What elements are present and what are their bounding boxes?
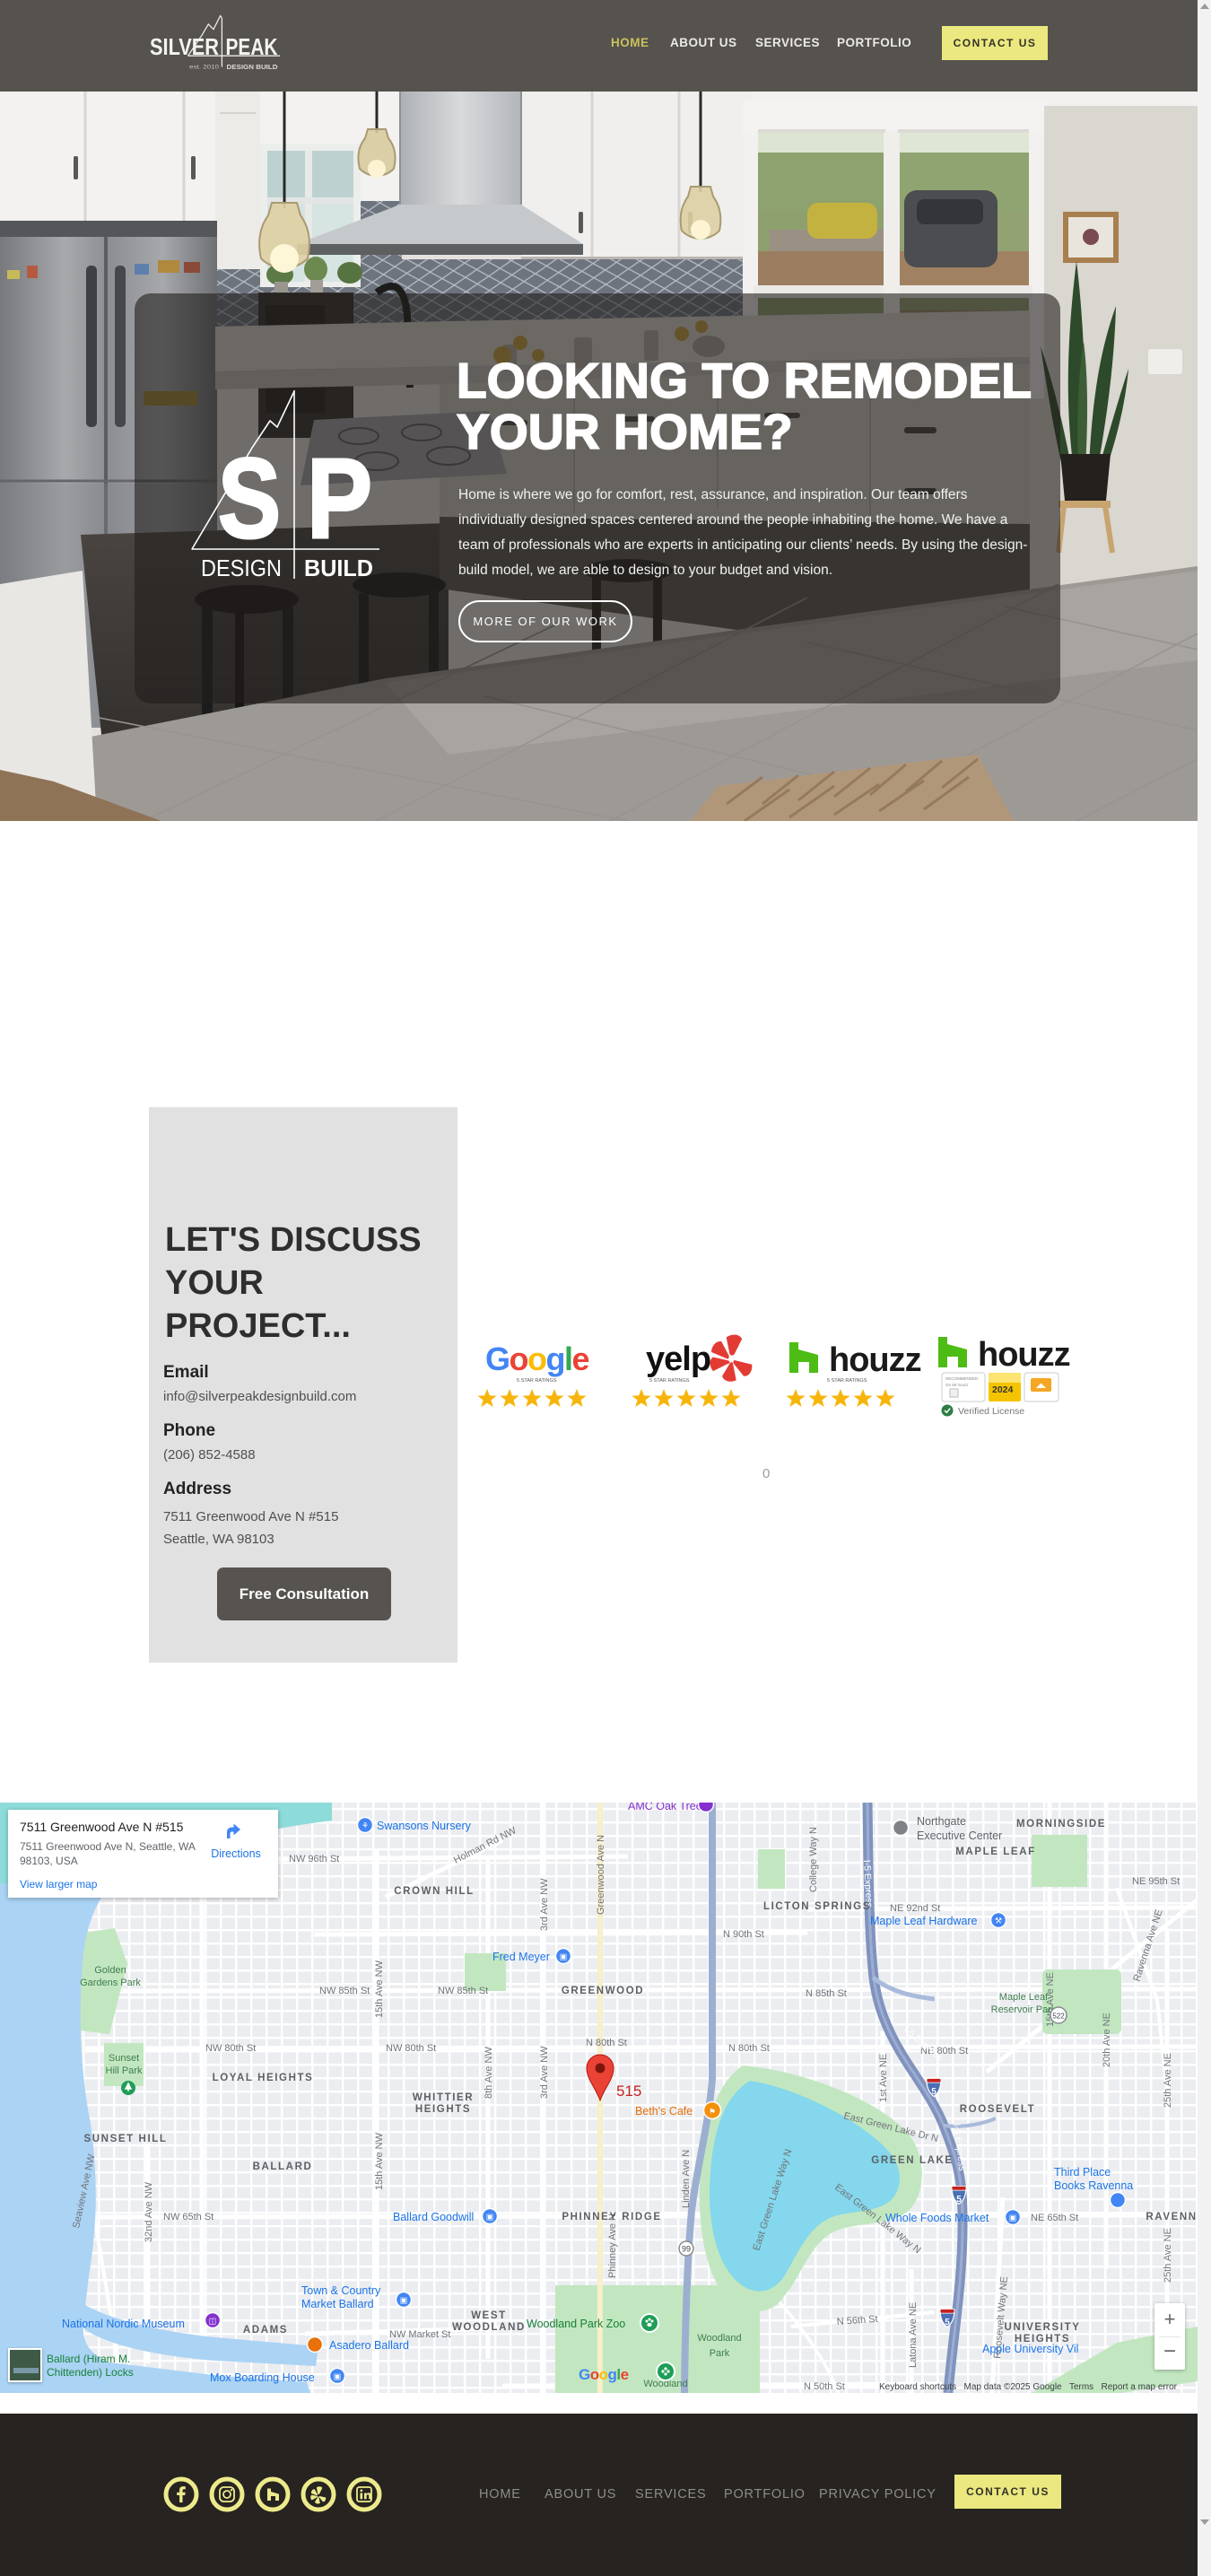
svg-text:Sunset: Sunset <box>109 2053 139 2064</box>
svg-text:5 STAR RATINGS: 5 STAR RATINGS <box>827 1378 867 1384</box>
svg-text:522: 522 <box>1052 2013 1065 2021</box>
svg-text:N 90th St: N 90th St <box>723 1929 764 1940</box>
svg-text:Books Ravenna: Books Ravenna <box>1054 2179 1133 2192</box>
svg-text:Maple Leaf Hardware: Maple Leaf Hardware <box>870 1915 978 1927</box>
svg-text:P: P <box>307 435 372 562</box>
svg-text:Hill Park: Hill Park <box>106 2065 143 2076</box>
svg-text:25th Ave NE: 25th Ave NE <box>1163 2053 1173 2108</box>
svg-text:WOODLAND: WOODLAND <box>452 2322 526 2333</box>
svg-text:20th Ave NE: 20th Ave NE <box>1102 2013 1112 2067</box>
svg-text:25th Ave NE: 25th Ave NE <box>1163 2228 1173 2283</box>
svg-text:MORNINGSIDE: MORNINGSIDE <box>1016 1819 1106 1829</box>
svg-text:NW 80th St: NW 80th St <box>386 2043 436 2054</box>
svg-text:DESIGN: DESIGN <box>201 554 282 581</box>
svg-text:1st Ave NE: 1st Ave NE <box>878 2054 889 2102</box>
svg-text:3rd Ave NW: 3rd Ave NW <box>539 1878 550 1931</box>
svg-text:N 85th St: N 85th St <box>806 1988 847 1999</box>
svg-text:⚑: ⚑ <box>709 2108 716 2117</box>
svg-text:Executive Center: Executive Center <box>917 1829 1002 1842</box>
svg-text:PEAK: PEAK <box>226 35 278 60</box>
svg-text:BALLARD: BALLARD <box>253 2161 313 2172</box>
svg-text:NW 85th St: NW 85th St <box>319 1986 370 1996</box>
svg-text:Golden: Golden <box>94 1965 126 1976</box>
svg-text:WEST: WEST <box>471 2310 507 2321</box>
svg-text:GREEN LAKE: GREEN LAKE <box>871 2155 953 2166</box>
svg-text:houzz: houzz <box>978 1336 1070 1374</box>
svg-text:NW 65th St: NW 65th St <box>163 2212 213 2222</box>
svg-text:National Nordic Museum: National Nordic Museum <box>62 2318 185 2330</box>
svg-text:Google: Google <box>485 1340 589 1377</box>
svg-text:515: 515 <box>616 2083 641 2100</box>
svg-text:NW 80th St: NW 80th St <box>205 2043 256 2054</box>
svg-text:On 50 houzz: On 50 houzz <box>945 1383 969 1387</box>
svg-text:Latona Ave NE: Latona Ave NE <box>908 2302 919 2368</box>
svg-text:Woodland Park Zoo: Woodland Park Zoo <box>527 2318 625 2330</box>
svg-text:Gardens Park: Gardens Park <box>80 1978 141 1988</box>
svg-text:HEIGHTS: HEIGHTS <box>415 2104 471 2115</box>
svg-text:SUNSET HILL: SUNSET HILL <box>84 2134 168 2144</box>
svg-text:Asadero Ballard: Asadero Ballard <box>329 2339 409 2352</box>
svg-text:ROOSEVELT: ROOSEVELT <box>960 2104 1035 2115</box>
svg-text:15th Ave NW: 15th Ave NW <box>374 1960 385 2018</box>
svg-text:LICTON SPRINGS: LICTON SPRINGS <box>763 1901 871 1912</box>
svg-text:8th Ave NW: 8th Ave NW <box>484 2047 494 2099</box>
svg-text:Reservoir Park: Reservoir Park <box>991 2004 1057 2015</box>
svg-text:MAPLE LEAF: MAPLE LEAF <box>955 1847 1035 1857</box>
svg-text:SILVER: SILVER <box>150 35 219 60</box>
svg-text:houzz: houzz <box>829 1341 921 1379</box>
svg-text:Mox Boarding House: Mox Boarding House <box>210 2371 315 2384</box>
svg-text:Whole Foods Market: Whole Foods Market <box>885 2212 989 2224</box>
svg-text:BUILD: BUILD <box>304 554 373 581</box>
svg-text:Swansons Nursery: Swansons Nursery <box>377 1820 472 1832</box>
svg-text:Apple University Vil: Apple University Vil <box>982 2343 1078 2355</box>
svg-text:5: 5 <box>956 2195 962 2205</box>
svg-text:NW 96th St: NW 96th St <box>289 1854 339 1864</box>
svg-text:Fred Meyer: Fred Meyer <box>492 1951 550 1963</box>
svg-text:▣: ▣ <box>1009 2214 1017 2222</box>
svg-text:5: 5 <box>931 2087 937 2097</box>
svg-text:S: S <box>218 435 281 562</box>
svg-text:WHITTIER: WHITTIER <box>413 2092 474 2103</box>
svg-text:Chittenden) Locks: Chittenden) Locks <box>47 2366 134 2379</box>
svg-text:5: 5 <box>945 2318 950 2327</box>
svg-text:ADAMS: ADAMS <box>243 2325 288 2336</box>
svg-text:Greenwood Ave N: Greenwood Ave N <box>596 1835 606 1915</box>
svg-text:▣: ▣ <box>560 1952 568 1961</box>
svg-text:N 50th St: N 50th St <box>804 2381 845 2392</box>
svg-text:N 80th St: N 80th St <box>728 2043 770 2054</box>
svg-text:N 80th St: N 80th St <box>586 2038 627 2048</box>
svg-text:CROWN HILL: CROWN HILL <box>394 1886 474 1897</box>
svg-text:⚒: ⚒ <box>995 1917 1002 1925</box>
svg-text:◫: ◫ <box>209 2317 217 2326</box>
svg-text:▣: ▣ <box>334 2372 342 2381</box>
svg-text:NW 85th St: NW 85th St <box>438 1986 488 1996</box>
svg-text:est. 2010: est. 2010 <box>189 65 220 71</box>
svg-text:RAVENNA: RAVENNA <box>1146 2212 1198 2222</box>
svg-text:NE 92nd St: NE 92nd St <box>890 1903 940 1914</box>
svg-text:Maple Leaf: Maple Leaf <box>999 1992 1049 2003</box>
svg-text:99: 99 <box>682 2245 691 2254</box>
svg-text:Beth's Cafe: Beth's Cafe <box>635 2105 693 2118</box>
svg-text:College Way N: College Way N <box>808 1827 819 1892</box>
svg-text:5 STAR RATINGS: 5 STAR RATINGS <box>649 1378 690 1384</box>
svg-text:RECOMMENDED: RECOMMENDED <box>945 1376 979 1381</box>
svg-text:NE 65th St: NE 65th St <box>1031 2213 1078 2223</box>
svg-text:▣: ▣ <box>400 2296 408 2305</box>
svg-text:⚘: ⚘ <box>362 1821 369 1830</box>
svg-text:3rd Ave NW: 3rd Ave NW <box>539 2046 550 2099</box>
svg-text:LOYAL HEIGHTS: LOYAL HEIGHTS <box>213 2073 314 2083</box>
svg-text:GREENWOOD: GREENWOOD <box>562 1986 644 1996</box>
svg-text:5 STAR RATINGS: 5 STAR RATINGS <box>517 1378 557 1384</box>
svg-text:2024: 2024 <box>992 1384 1014 1395</box>
svg-text:Ballard Goodwill: Ballard Goodwill <box>393 2211 474 2223</box>
svg-text:Market Ballard: Market Ballard <box>301 2298 374 2310</box>
svg-text:Verified License: Verified License <box>958 1406 1024 1417</box>
svg-text:DESIGN BUILD: DESIGN BUILD <box>227 63 278 71</box>
svg-text:Phinney Ave N: Phinney Ave N <box>607 2214 618 2278</box>
svg-text:NE 95th St: NE 95th St <box>1132 1876 1180 1887</box>
svg-text:Linden Ave N: Linden Ave N <box>681 2150 692 2208</box>
svg-text:UNIVERSITY: UNIVERSITY <box>1004 2322 1080 2333</box>
svg-text:Park: Park <box>710 2348 730 2359</box>
svg-text:PHINNEY RIDGE: PHINNEY RIDGE <box>562 2212 661 2222</box>
svg-text:Third Place: Third Place <box>1054 2166 1111 2179</box>
svg-text:yelp: yelp <box>646 1340 710 1378</box>
svg-text:Ballard (Hiram M.: Ballard (Hiram M. <box>47 2353 130 2365</box>
svg-text:Town & Country: Town & Country <box>301 2284 381 2297</box>
svg-text:32nd Ave NW: 32nd Ave NW <box>144 2181 154 2242</box>
svg-text:15th Ave NW: 15th Ave NW <box>374 2132 385 2190</box>
svg-text:▣: ▣ <box>486 2213 494 2222</box>
svg-text:Northgate: Northgate <box>917 1815 966 1828</box>
svg-text:Woodland: Woodland <box>697 2333 741 2344</box>
